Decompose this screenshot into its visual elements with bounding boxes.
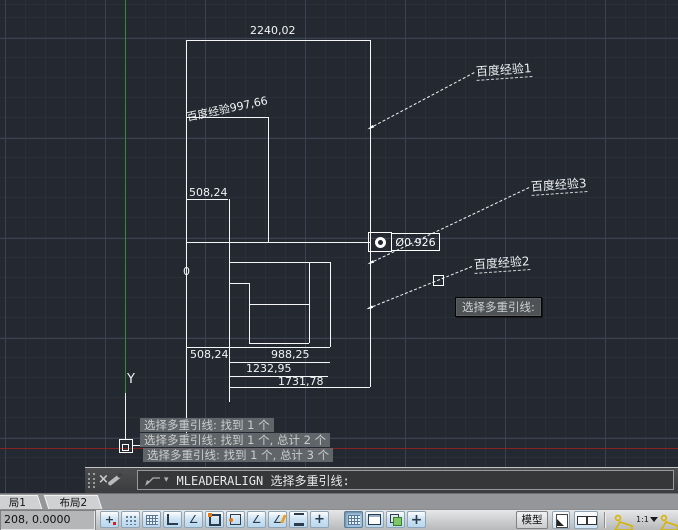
angle-icon: ∠ xyxy=(252,513,262,526)
quickprop-toggle-button[interactable]: + xyxy=(310,511,329,528)
otrack-icon xyxy=(230,514,241,525)
drawing-line[interactable] xyxy=(229,283,249,284)
grid-dots-toggle-button[interactable] xyxy=(121,511,140,528)
layout-tab-bar: 局1 布局2 xyxy=(0,493,678,509)
multileader-line-1[interactable] xyxy=(369,72,475,129)
layout-quickview-button[interactable] xyxy=(552,511,570,529)
drawing-line[interactable] xyxy=(370,40,371,387)
grid-toggle-button[interactable] xyxy=(142,511,161,528)
dimension-zero: 0 xyxy=(183,266,190,277)
otrack-toggle-button[interactable] xyxy=(226,511,245,528)
table-icon xyxy=(368,514,381,525)
snap-toggle-button[interactable]: + xyxy=(100,511,119,528)
chevron-down-icon[interactable]: ▾ xyxy=(164,475,169,485)
diameter-symbol-frame[interactable] xyxy=(368,232,392,252)
annotation-visibility-button[interactable] xyxy=(612,514,634,530)
drafting-toggles: + ∠ ∠ ∠ + xyxy=(100,511,329,528)
dimension-step: 508,24 xyxy=(189,187,228,198)
angle-toggle-button[interactable]: ∠ xyxy=(247,511,266,528)
multileader-command-icon xyxy=(144,473,162,487)
drawing-line[interactable] xyxy=(229,262,330,263)
polar-angle-icon: ∠ xyxy=(189,513,199,526)
coordinate-display[interactable]: 208, 0.0000 xyxy=(0,510,96,530)
drawing-line[interactable] xyxy=(249,343,309,344)
dimension-chain-4: 1731,78 xyxy=(278,376,324,387)
palette-grip-handle[interactable] xyxy=(88,473,95,488)
ducs-toggle-button[interactable] xyxy=(386,511,405,528)
drawing-line[interactable] xyxy=(249,283,250,343)
dimension-chain-1: 508,24 xyxy=(190,349,229,360)
ortho-toggle-button[interactable] xyxy=(163,511,182,528)
statusbar-separator xyxy=(604,512,605,528)
ucs-x-axis-line xyxy=(0,448,678,449)
dimension-chain-2: 988,25 xyxy=(271,349,310,360)
checker-icon xyxy=(348,515,360,525)
autocad-window: Y 2240,02 百度经验997,66 508,24 0 508,24 988… xyxy=(0,0,678,530)
drawing-line[interactable] xyxy=(186,40,187,437)
grid-icon xyxy=(146,515,158,525)
crosshair-icon: + xyxy=(411,512,423,528)
lineweight-toggle-button[interactable] xyxy=(289,511,308,528)
ucs-y-axis-line xyxy=(125,0,126,393)
hatch-toggle-button[interactable] xyxy=(344,511,363,528)
command-prompt-text[interactable]: MLEADERALIGN 选择多重引线: xyxy=(177,472,350,489)
annotation-scale-icon xyxy=(658,514,678,530)
drawing-line[interactable] xyxy=(330,262,331,347)
drawing-line[interactable] xyxy=(229,199,230,402)
drawing-line[interactable] xyxy=(186,242,370,243)
annotation-scale-icon xyxy=(612,514,634,530)
drawing-line[interactable] xyxy=(268,117,269,242)
command-message-1: 选择多重引线: 找到 1 个 xyxy=(140,418,274,432)
plus-icon: + xyxy=(314,512,325,527)
triangle-icon xyxy=(557,519,564,526)
command-line-palette: × ▾ MLEADERALIGN 选择多重引线: xyxy=(85,467,678,493)
annotation-autoscale-button[interactable] xyxy=(658,514,678,530)
multileader-label-2[interactable]: 百度经验2 xyxy=(474,255,531,274)
dimension-diagonal: 百度经验997,66 xyxy=(186,95,269,123)
command-message-3: 选择多重引线: 找到 1 个, 总计 3 个 xyxy=(143,448,333,462)
tab-layout1[interactable]: 局1 xyxy=(0,495,42,509)
dynamic-input-tooltip: 选择多重引线: xyxy=(455,297,542,317)
crosshair-toggle-button[interactable]: + xyxy=(407,511,426,528)
drawing-canvas[interactable]: Y 2240,02 百度经验997,66 508,24 0 508,24 988… xyxy=(0,0,678,493)
sheet-icon xyxy=(587,516,597,525)
lineweight-icon xyxy=(294,513,304,526)
ducs-icon xyxy=(390,514,402,526)
table-toggle-button[interactable] xyxy=(365,511,384,528)
osnap-toggle-button[interactable] xyxy=(205,511,224,528)
annotation-scale-value[interactable]: 1:1 xyxy=(636,516,649,524)
model-space-button[interactable]: 模型 xyxy=(516,511,548,529)
chevron-down-icon[interactable] xyxy=(650,517,658,522)
ucs-origin-box xyxy=(119,439,133,453)
quickview-drawings-button[interactable] xyxy=(574,511,598,529)
close-icon[interactable]: × xyxy=(98,472,109,487)
multileader-label-1[interactable]: 百度经验1 xyxy=(476,62,533,81)
polar-toggle-button[interactable]: ∠ xyxy=(184,511,203,528)
multileader-label-3[interactable]: 百度经验3 xyxy=(531,177,588,196)
dimension-chain-3: 1232,95 xyxy=(246,363,292,374)
ortho-icon xyxy=(167,514,178,525)
command-message-2: 选择多重引线: 找到 1 个, 总计 2 个 xyxy=(140,433,330,447)
drawing-line[interactable] xyxy=(186,199,228,200)
osnap-icon xyxy=(209,514,221,526)
circle-symbol-icon xyxy=(375,237,386,248)
drawing-line[interactable] xyxy=(309,262,310,343)
secondary-toggles: + xyxy=(344,511,426,528)
grid-dots-icon xyxy=(125,515,137,525)
command-input-panel[interactable]: ▾ MLEADERALIGN 选择多重引线: xyxy=(137,470,674,490)
dimension-top: 2240,02 xyxy=(250,25,296,36)
wrench-icon[interactable] xyxy=(107,474,121,486)
ucs-y-label: Y xyxy=(127,372,135,387)
multileader-line-3[interactable] xyxy=(369,187,529,264)
ucs-y-axis-lower-line xyxy=(125,393,126,440)
selection-grip[interactable] xyxy=(433,275,444,286)
drawing-line[interactable] xyxy=(186,40,370,41)
dyn-toggle-button[interactable]: ∠ xyxy=(268,511,287,528)
status-bar: 208, 0.0000 + ∠ ∠ ∠ + + 模型 xyxy=(0,509,678,530)
sheet-icon xyxy=(577,516,587,525)
drawing-line[interactable] xyxy=(249,304,309,305)
tab-layout2[interactable]: 布局2 xyxy=(44,495,103,509)
